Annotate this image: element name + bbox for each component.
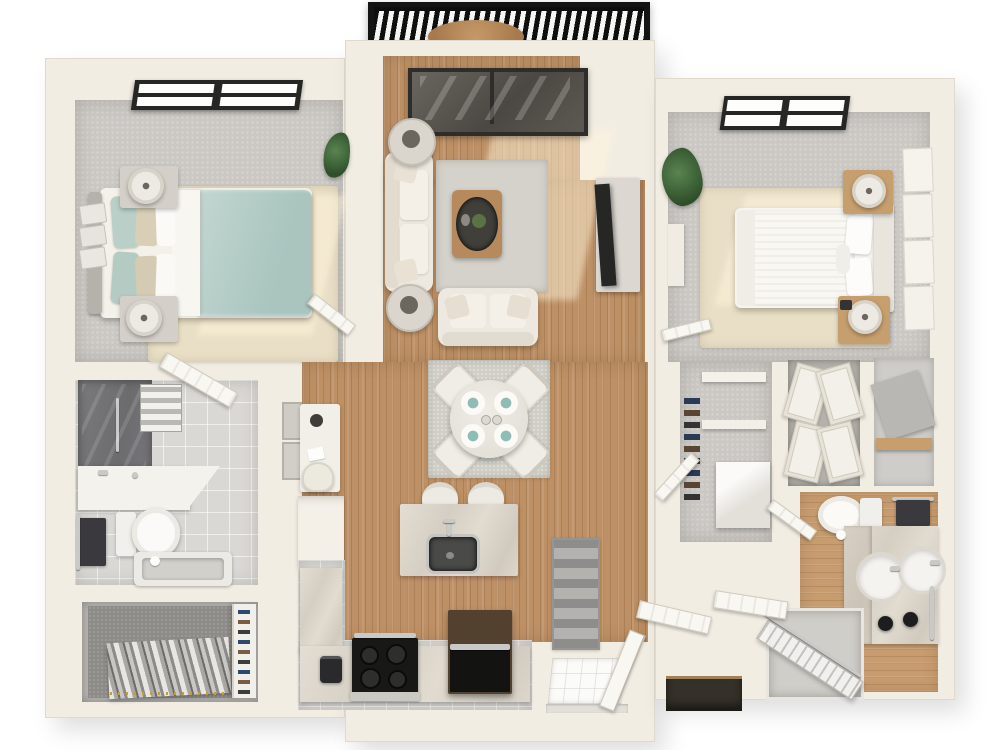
range-burner-2 <box>386 644 407 665</box>
bedroom1-wall-basket-1 <box>79 202 108 225</box>
island-sink-drain <box>446 552 454 559</box>
bathroom1-tub <box>134 552 232 586</box>
glass-reflection <box>420 76 570 120</box>
utility-wood-shelf <box>876 438 932 450</box>
bathroom2-sink-2 <box>898 546 946 594</box>
bedroom1-wall-basket-3 <box>79 246 108 269</box>
bathroom1-soap <box>132 472 138 478</box>
table-centerpiece-1 <box>481 415 491 425</box>
range-handle <box>354 633 416 638</box>
hall-cabinet <box>298 496 344 568</box>
coffee-table-decor <box>461 214 470 226</box>
kitchen-counter-left <box>300 568 342 652</box>
loveseat-pillow-2 <box>506 294 532 320</box>
bedroom2-duvet-fold <box>737 210 755 306</box>
loveseat-back <box>442 332 534 346</box>
bedroom2-clock <box>840 300 852 310</box>
closet1-shoe-rack <box>232 604 256 698</box>
runner-rug <box>552 538 600 650</box>
range-burner-3 <box>360 668 381 689</box>
bedroom1-lamp-bottom <box>126 300 162 336</box>
shower-glass-sheen <box>82 384 146 466</box>
refrigerator-front <box>450 648 510 692</box>
bedroom1-lamp-top <box>128 168 164 204</box>
bathroom1-toilet-bowl <box>132 508 180 558</box>
walkin-shelf-top <box>702 372 766 382</box>
bedroom2-art-2 <box>902 193 934 238</box>
bedroom2-art-3 <box>903 239 935 284</box>
hall-closet-shelf <box>666 676 742 711</box>
loveseat <box>438 288 538 346</box>
bedroom2-desk <box>668 224 684 286</box>
closet1-clothes <box>107 637 232 699</box>
refrigerator <box>448 610 512 694</box>
side-table-bottom-lamp <box>400 296 418 314</box>
refrigerator-handle <box>450 644 510 650</box>
bathroom1-faucet <box>98 470 108 475</box>
bathroom2-stool-1 <box>878 616 893 631</box>
bedroom2-lamp-bottom <box>848 300 882 334</box>
floor-plan-canvas <box>0 0 1000 750</box>
bedroom1-duvet-teal <box>198 190 312 316</box>
walkin-dresser <box>716 462 770 528</box>
place-setting-sw <box>461 424 485 448</box>
bathroom2-dark-towel <box>896 500 930 526</box>
sofa-pillow-2 <box>393 258 419 284</box>
closet1-shoes <box>238 608 250 694</box>
bedroom2-lamp-top <box>852 174 886 208</box>
bathroom2-towel-bar-right <box>930 586 934 640</box>
bathroom2-stool-2 <box>903 612 918 627</box>
bathroom1-tp-roll <box>150 556 160 566</box>
range-burner-1 <box>360 646 379 665</box>
place-setting-se <box>494 424 518 448</box>
sliding-glass-door <box>408 68 588 136</box>
bathroom1-towel-shelf <box>140 384 182 432</box>
hall-desk-chair <box>302 462 334 492</box>
coffee-table-plant <box>472 214 486 228</box>
bathroom2-tp-roll <box>836 530 846 540</box>
range-burner-4 <box>388 670 407 689</box>
oven-tray <box>350 692 420 701</box>
bathroom2-faucet-2 <box>930 560 940 565</box>
side-table-top-lamp <box>402 130 420 148</box>
island-faucet-spout <box>443 519 455 523</box>
place-setting-ne <box>494 391 518 415</box>
bedroom2-window <box>720 96 851 130</box>
hall-desk-lamp <box>310 414 323 427</box>
bathroom2-faucet-1 <box>890 566 900 571</box>
range <box>352 638 418 694</box>
closet1-hanger-rod <box>110 692 228 695</box>
bedroom2-art-1 <box>902 147 934 192</box>
bedroom1-window <box>131 80 303 110</box>
bathroom1-dark-towel <box>78 518 106 566</box>
toaster <box>320 656 342 683</box>
bedroom1-wall-basket-2 <box>79 224 108 247</box>
place-setting-nw <box>461 391 485 415</box>
hall-frame-2 <box>282 442 302 480</box>
walkin-shelf-mid <box>702 420 766 429</box>
walkin-shoe-stack <box>684 398 700 500</box>
table-centerpiece-2 <box>492 415 502 425</box>
sofa <box>385 152 433 292</box>
hall-frame-1 <box>282 402 302 440</box>
bedroom2-roll-pillow <box>836 244 850 274</box>
bedroom2-art-4 <box>903 285 935 330</box>
bathroom1-towel-bar <box>76 514 80 570</box>
